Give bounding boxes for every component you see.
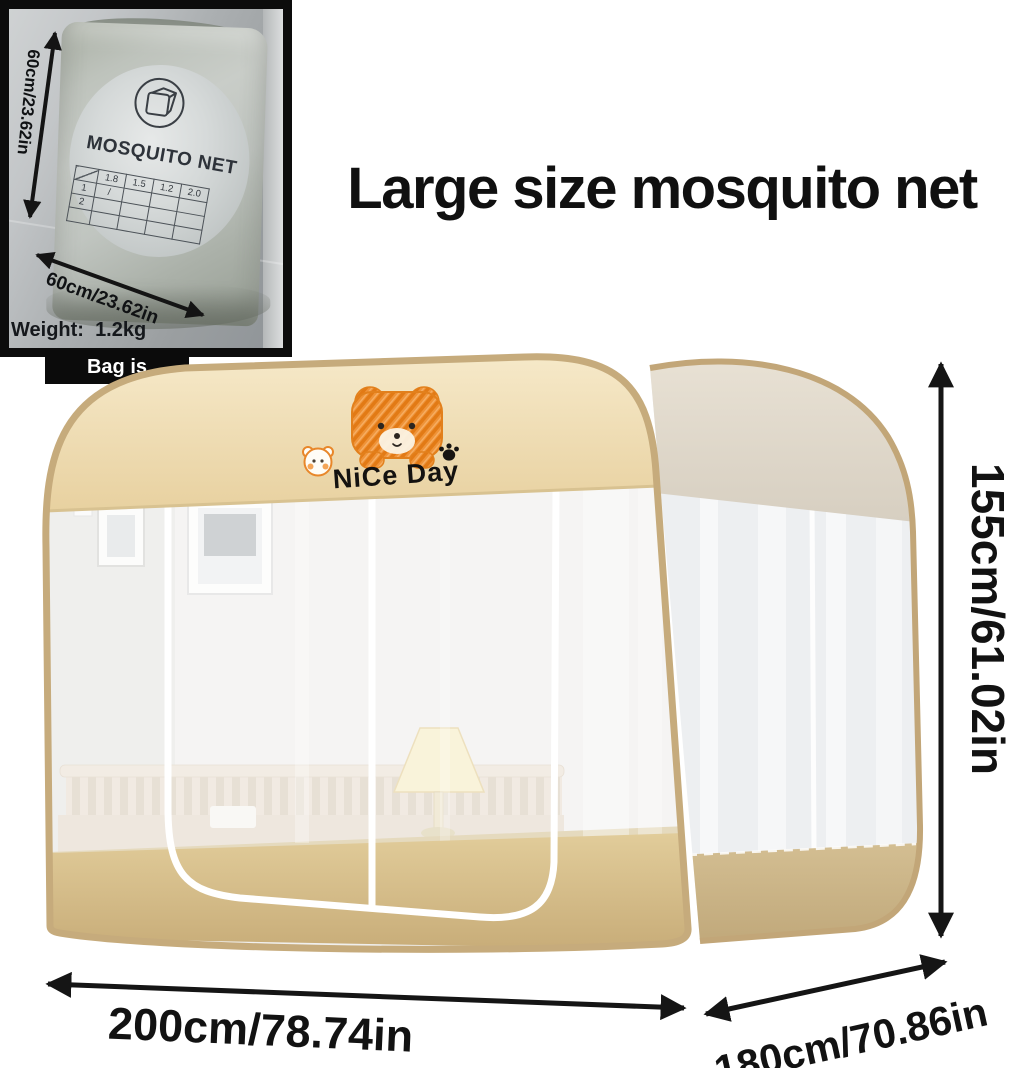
height-dimension-label: 155cm/61.02in [961, 463, 1015, 763]
tent-illustration [0, 0, 1024, 1068]
orange-doodle-bear-icon [352, 387, 442, 468]
tent-front-panel [30, 336, 700, 960]
product-infographic: MOSQUITO NET 1.8 1.5 1.2 2.0 1 / [0, 0, 1024, 1068]
